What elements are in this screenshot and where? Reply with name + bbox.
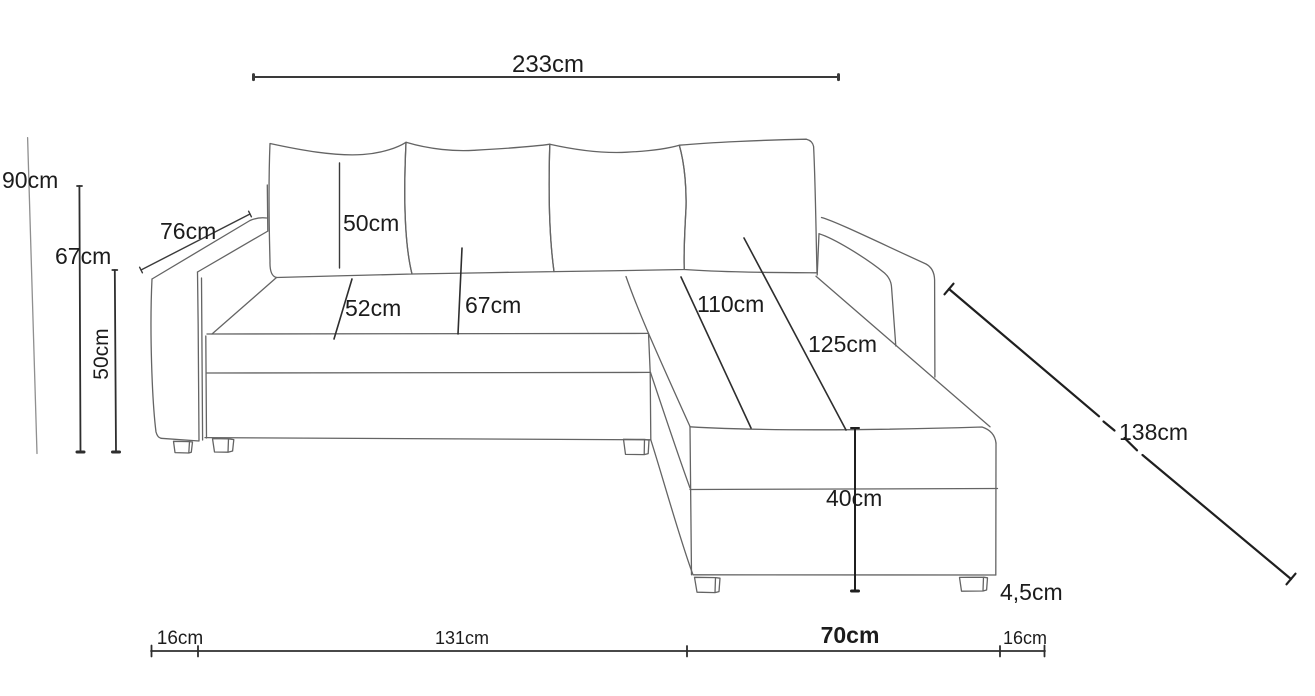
svg-text:70cm: 70cm: [821, 622, 880, 648]
svg-text:90cm: 90cm: [2, 167, 58, 193]
svg-text:110cm: 110cm: [697, 291, 764, 317]
svg-text:67cm: 67cm: [55, 243, 111, 269]
svg-text:52cm: 52cm: [345, 295, 401, 321]
svg-text:67cm: 67cm: [465, 292, 521, 318]
svg-text:40cm: 40cm: [826, 485, 882, 511]
svg-text:50cm: 50cm: [343, 210, 399, 236]
svg-text:233cm: 233cm: [512, 51, 584, 78]
svg-text:138cm: 138cm: [1119, 419, 1188, 445]
svg-text:76cm: 76cm: [160, 218, 216, 244]
svg-text:16cm: 16cm: [1003, 628, 1047, 648]
svg-text:16cm: 16cm: [157, 628, 203, 649]
svg-text:125cm: 125cm: [808, 331, 877, 357]
svg-text:131cm: 131cm: [435, 628, 489, 648]
svg-text:4,5cm: 4,5cm: [1000, 579, 1063, 605]
svg-text:50cm: 50cm: [90, 328, 113, 379]
